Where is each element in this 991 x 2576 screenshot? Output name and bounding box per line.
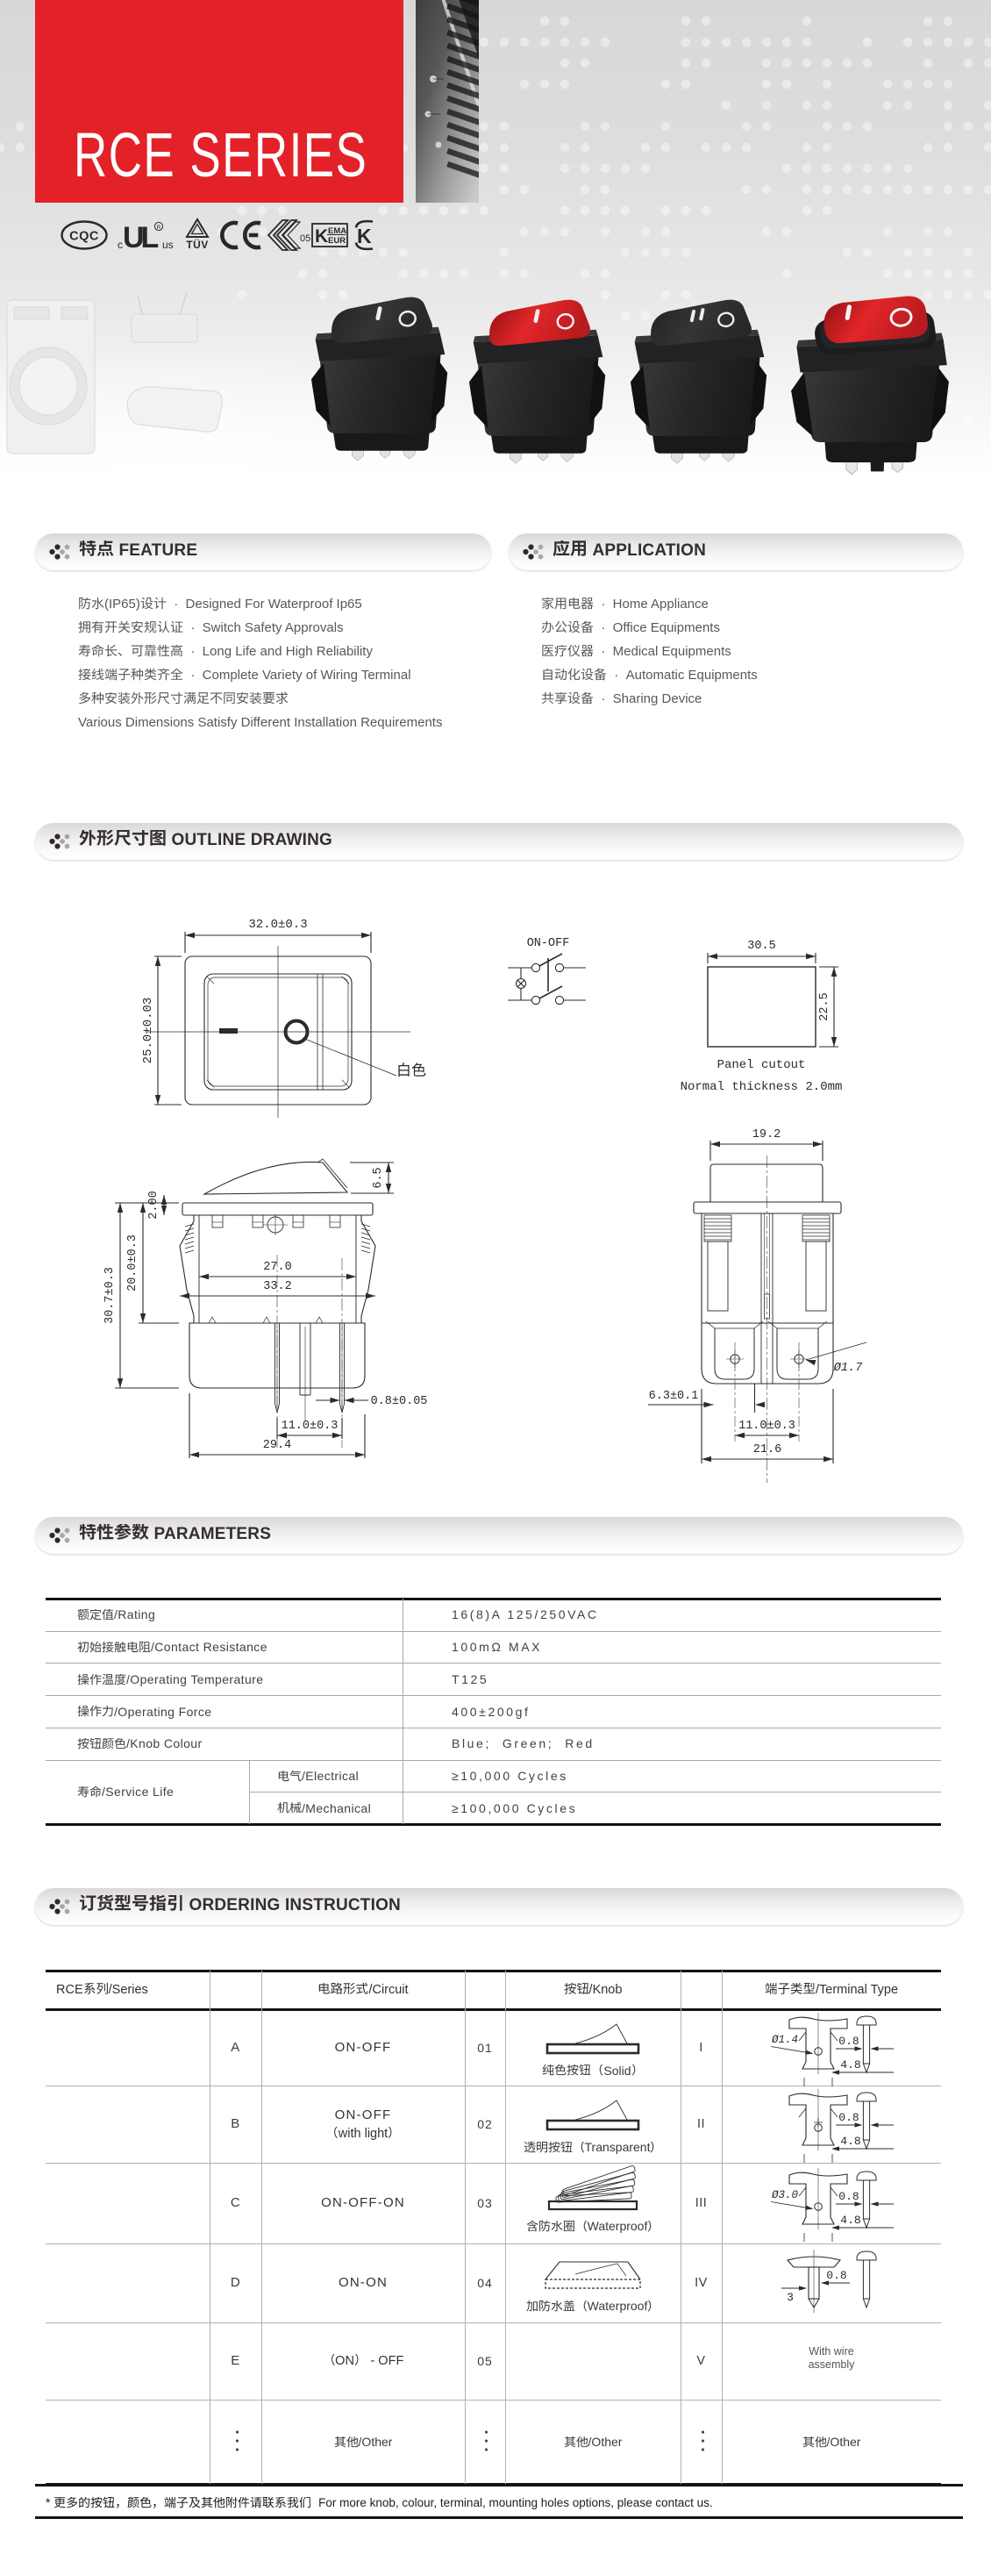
svg-text:27.0: 27.0 [263, 1261, 291, 1274]
svg-text:30.7±0.3: 30.7±0.3 [103, 1267, 117, 1324]
svg-text:19.2: 19.2 [752, 1128, 781, 1141]
svg-text:20.0±0.3: 20.0±0.3 [126, 1234, 139, 1292]
svg-text:4.8: 4.8 [840, 2214, 860, 2227]
svg-text:0.8: 0.8 [838, 2190, 859, 2203]
svg-text:30.5: 30.5 [747, 940, 775, 953]
svg-text:29.4: 29.4 [263, 1439, 291, 1452]
svg-text:ON-OFF: ON-OFF [527, 937, 570, 950]
svg-text:33.2: 33.2 [263, 1280, 291, 1293]
svg-text:0.8: 0.8 [838, 2035, 859, 2048]
svg-text:3: 3 [787, 2291, 794, 2304]
svg-text:6.3±0.1: 6.3±0.1 [649, 1390, 699, 1403]
svg-text:Ø1.7: Ø1.7 [833, 1362, 863, 1375]
svg-text:25.0±0.03: 25.0±0.03 [141, 998, 155, 1064]
svg-text:22.5: 22.5 [818, 992, 831, 1020]
svg-text:0.8: 0.8 [838, 2111, 859, 2124]
svg-text:11.0±0.3: 11.0±0.3 [282, 1420, 339, 1433]
svg-text:11.0±0.3: 11.0±0.3 [738, 1420, 795, 1433]
svg-text:0.8: 0.8 [826, 2269, 846, 2282]
svg-text:4.8: 4.8 [840, 2135, 860, 2148]
svg-text:6.5: 6.5 [372, 1167, 385, 1188]
svg-text:0.8±0.05: 0.8±0.05 [371, 1395, 428, 1408]
svg-text:Ø3.0: Ø3.0 [771, 2189, 799, 2201]
svg-text:Ø1.4: Ø1.4 [771, 2034, 798, 2046]
svg-text:2.00: 2.00 [147, 1191, 160, 1219]
svg-text:32.0±0.3: 32.0±0.3 [248, 918, 307, 932]
svg-text:21.6: 21.6 [753, 1443, 781, 1456]
svg-text:Normal thickness 2.0mm: Normal thickness 2.0mm [681, 1080, 843, 1094]
svg-text:Panel cutout: Panel cutout [717, 1058, 806, 1072]
svg-text:4.8: 4.8 [840, 2058, 860, 2072]
